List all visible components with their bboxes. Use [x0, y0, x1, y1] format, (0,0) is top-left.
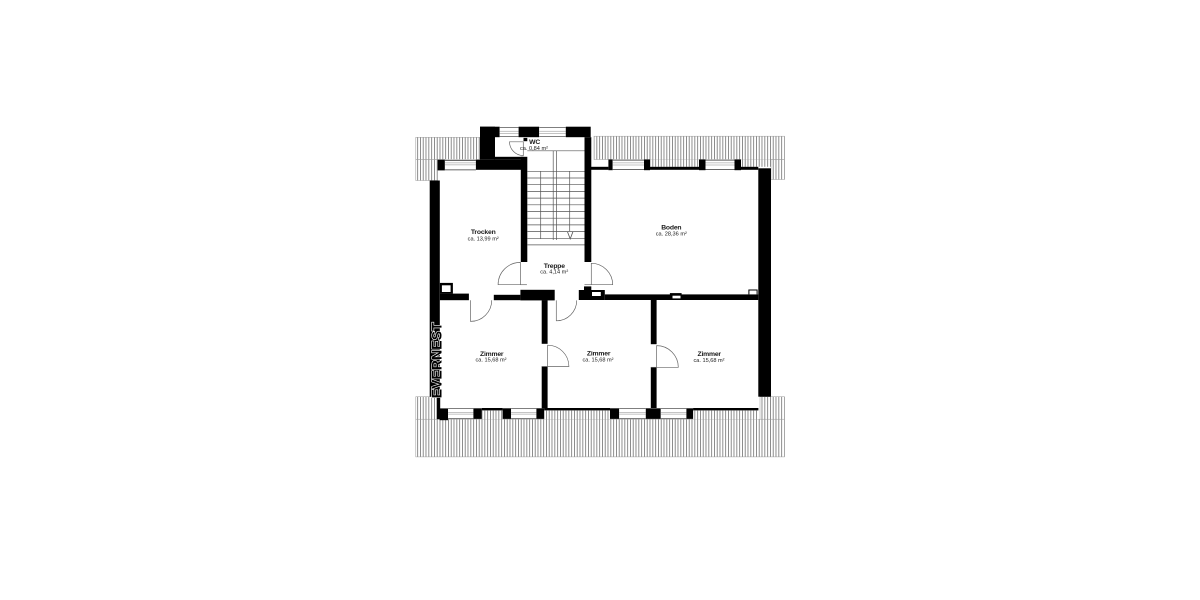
svg-text:ca. 13,99 m²: ca. 13,99 m²: [468, 236, 499, 242]
svg-text:Trocken: Trocken: [471, 229, 496, 236]
svg-text:ca. 4,14 m²: ca. 4,14 m²: [540, 269, 568, 275]
svg-text:ca. 0,84 m²: ca. 0,84 m²: [520, 146, 548, 152]
svg-text:ca. 15,68 m²: ca. 15,68 m²: [475, 358, 506, 364]
svg-text:Zimmer: Zimmer: [698, 351, 722, 358]
svg-text:EVERNEST: EVERNEST: [429, 322, 445, 398]
svg-text:ca. 15,68 m²: ca. 15,68 m²: [582, 358, 613, 364]
svg-text:ca. 28,36 m²: ca. 28,36 m²: [656, 232, 687, 238]
svg-text:ca. 15,68 m²: ca. 15,68 m²: [693, 358, 724, 364]
svg-text:Zimmer: Zimmer: [587, 350, 611, 357]
svg-text:Boden: Boden: [661, 224, 681, 231]
